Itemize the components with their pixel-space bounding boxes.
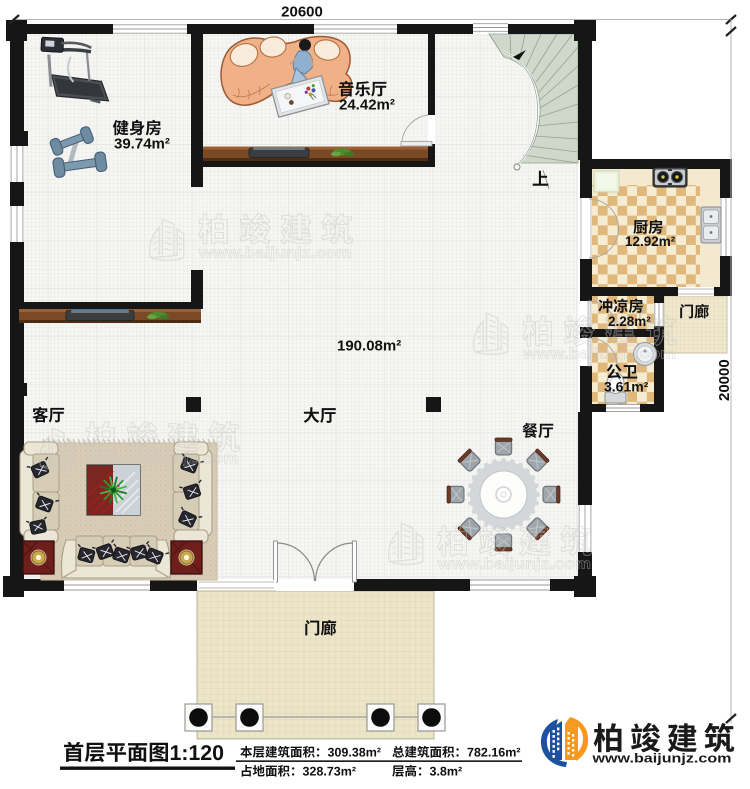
svg-text:www.baijunjz.com: www.baijunjz.com [437, 556, 591, 573]
svg-text:190.08m²: 190.08m² [337, 338, 401, 355]
svg-text:24.42m²: 24.42m² [339, 97, 395, 114]
svg-text:20600: 20600 [281, 4, 323, 21]
svg-text:www.baijunjz.com: www.baijunjz.com [591, 751, 731, 766]
svg-text:2.28m²: 2.28m² [608, 314, 651, 329]
svg-text:12.92m²: 12.92m² [625, 234, 676, 249]
svg-text:www.baijunjz.com: www.baijunjz.com [85, 450, 239, 467]
svg-text:www.baijunjz.com: www.baijunjz.com [198, 245, 352, 262]
svg-text:39.74m²: 39.74m² [114, 136, 170, 153]
svg-text:www.baijunjz.com: www.baijunjz.com [522, 346, 676, 363]
svg-text:20000: 20000 [716, 359, 733, 401]
svg-text:3.61m²: 3.61m² [604, 379, 649, 395]
